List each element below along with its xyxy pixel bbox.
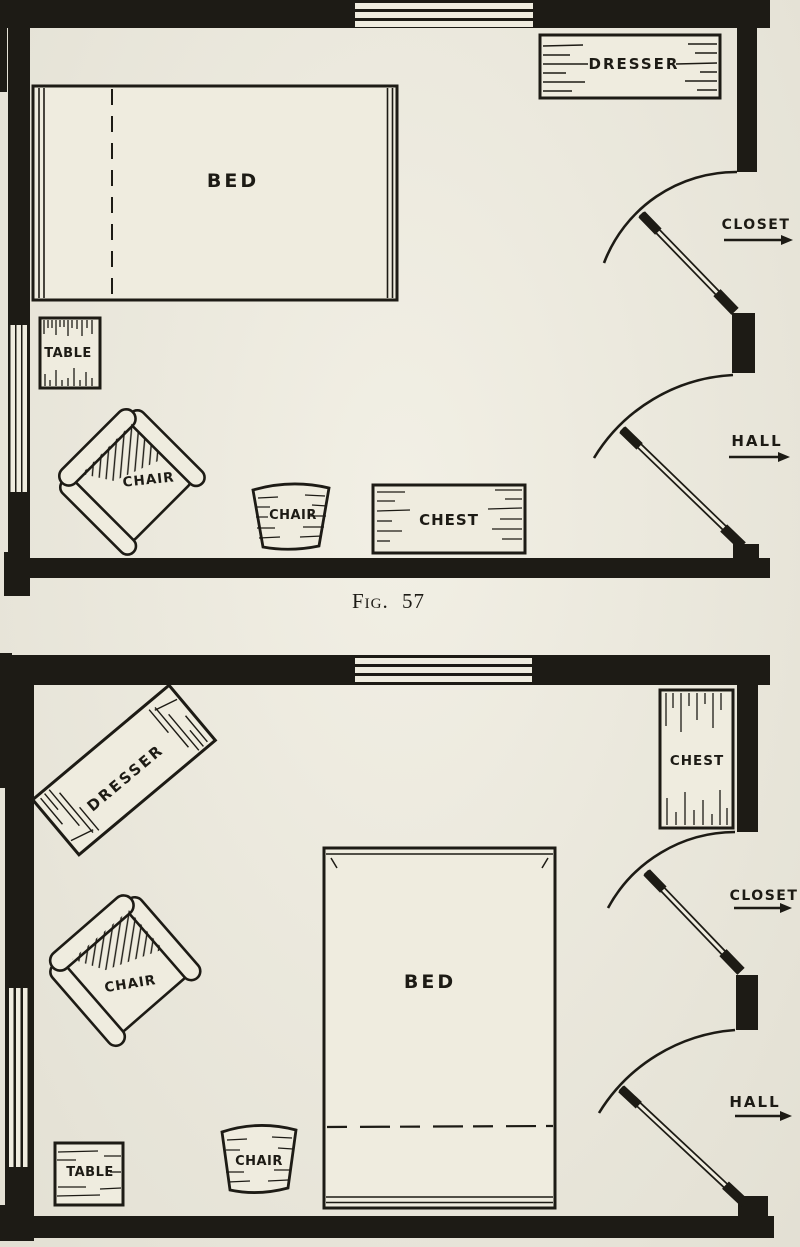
door-hinge-mark xyxy=(722,1181,748,1206)
window-left xyxy=(11,325,28,492)
closet-arrow xyxy=(734,903,792,913)
dresser: DRESSER xyxy=(33,685,216,855)
bed-pillow-dashed-line xyxy=(327,1126,553,1127)
armchair: CHAIR xyxy=(50,400,208,558)
chest: CHEST xyxy=(660,690,733,828)
figure-caption: Fig. 57 xyxy=(352,589,425,614)
dresser-label: DRESSER xyxy=(589,55,680,73)
scanned-book-page: CLOSET HALL BED xyxy=(0,0,800,1247)
closet-door-swing-arc xyxy=(604,172,737,263)
wall-right-upper xyxy=(737,0,757,172)
door-hinge-mark xyxy=(713,289,738,315)
side-chair-label: CHAIR xyxy=(269,508,317,523)
page-edge-artifact xyxy=(0,0,7,92)
wall-right-upper xyxy=(737,685,758,832)
wall-corner-block xyxy=(0,1205,34,1241)
armchair: CHAIR xyxy=(41,887,204,1050)
hall-arrowhead xyxy=(780,1111,792,1121)
closet-label: CLOSET xyxy=(722,217,791,233)
closet-arrowhead xyxy=(780,903,792,913)
wall-bottom xyxy=(8,558,770,578)
hall-arrow xyxy=(735,1111,792,1121)
wall-corner-block xyxy=(4,552,30,596)
wall-right-mid-block xyxy=(736,975,758,1030)
hall-arrow xyxy=(729,452,790,462)
table-label: TABLE xyxy=(44,346,92,361)
floor-plan-second: CLOSET HALL xyxy=(0,640,800,1247)
hall-door-swing-arc xyxy=(599,1030,735,1113)
window-top xyxy=(355,3,533,27)
hall-arrowhead xyxy=(778,452,790,462)
side-chair: CHAIR xyxy=(222,1125,296,1192)
hall-label: HALL xyxy=(729,1093,780,1111)
table-label: TABLE xyxy=(66,1165,114,1180)
side-chair-label: CHAIR xyxy=(235,1154,283,1169)
table: TABLE xyxy=(55,1143,123,1205)
dresser: DRESSER xyxy=(540,35,720,98)
bed: BED xyxy=(324,848,555,1208)
bed-label: BED xyxy=(207,170,259,192)
window-top xyxy=(355,658,532,682)
closet-door xyxy=(608,832,745,975)
closet-door xyxy=(604,172,739,315)
wall-right-mid-block xyxy=(732,313,755,373)
table: TABLE xyxy=(40,318,100,388)
closet-label: CLOSET xyxy=(730,888,799,904)
hall-door xyxy=(599,1030,748,1207)
door-hinge-mark xyxy=(719,949,744,975)
door-hinge-mark xyxy=(643,869,666,893)
floor-plan-fig-57: CLOSET HALL BED xyxy=(0,0,800,640)
wall-bottom xyxy=(6,1216,774,1238)
hall-door xyxy=(594,375,746,550)
door-hinge-mark xyxy=(618,1086,642,1109)
side-chair: CHAIR xyxy=(253,484,329,549)
chest-label: CHEST xyxy=(419,511,479,529)
chest-label: CHEST xyxy=(670,753,724,769)
door-hinge-mark xyxy=(619,426,643,449)
bed: BED xyxy=(33,86,397,300)
door-hinge-mark xyxy=(638,211,661,235)
closet-arrow xyxy=(724,235,793,245)
bed-label: BED xyxy=(404,971,456,993)
closet-arrowhead xyxy=(781,235,793,245)
window-left xyxy=(9,988,28,1167)
hall-label: HALL xyxy=(731,432,782,450)
chest: CHEST xyxy=(373,485,525,553)
hall-door-swing-arc xyxy=(594,375,733,458)
